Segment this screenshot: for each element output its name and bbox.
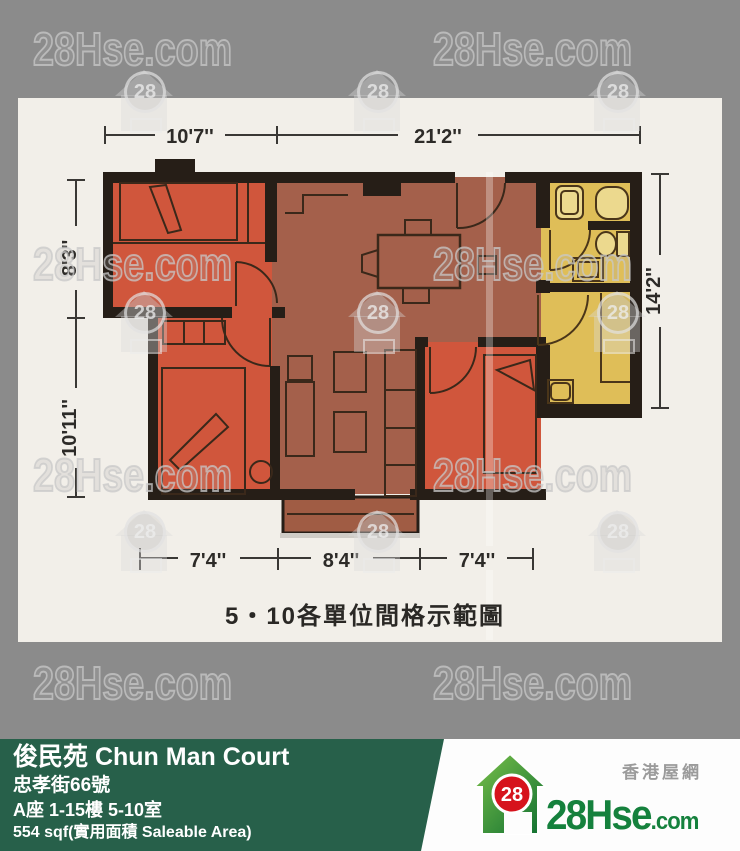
dim-top-right: 21'2'' — [414, 126, 462, 148]
dim-left-lower: 10'11'' — [59, 399, 81, 457]
info-bar: 俊民苑 Chun Man Court 忠孝街66號 A座 1-15樓 5-10室… — [0, 739, 740, 851]
dim-right: 14'2'' — [643, 267, 665, 315]
dim-top-left: 10'7'' — [166, 126, 214, 148]
logo-badge-number: 28 — [501, 784, 523, 806]
dim-bottom-middle: 8'4'' — [323, 550, 360, 572]
page: 10'7'' 21'2'' 8'3'' 10'11'' 14'2'' 7'4''… — [0, 0, 740, 851]
dim-bottom-right: 7'4'' — [459, 550, 496, 572]
property-area: 554 sqf(實用面積 Saleable Area) — [13, 822, 289, 844]
bedroom2-floor — [153, 313, 275, 494]
property-unit: A座 1-15樓 5-10室 — [13, 798, 289, 822]
balcony — [280, 497, 420, 538]
floor-plan: 10'7'' 21'2'' 8'3'' 10'11'' 14'2'' 7'4''… — [0, 0, 740, 851]
site-suffix: .com — [651, 808, 699, 835]
site-tagline: 香港屋網 — [622, 758, 702, 783]
logo-area: 28 28Hse.com 香港屋網 — [410, 739, 740, 851]
bedroom3-floor — [420, 342, 541, 494]
28hse-house-icon[interactable]: 28 — [474, 754, 546, 836]
site-logo-text[interactable]: 28Hse.com — [546, 791, 699, 839]
dim-left-upper: 8'3'' — [59, 240, 81, 277]
property-address: 忠孝街66號 — [13, 773, 289, 798]
plan-caption: 5・10各單位間格示範圖 — [225, 602, 505, 630]
property-title: 俊民苑 Chun Man Court — [13, 742, 289, 773]
site-name: 28Hse — [546, 791, 651, 838]
property-info: 俊民苑 Chun Man Court 忠孝街66號 A座 1-15樓 5-10室… — [13, 742, 289, 844]
dim-bottom-left: 7'4'' — [190, 550, 227, 572]
